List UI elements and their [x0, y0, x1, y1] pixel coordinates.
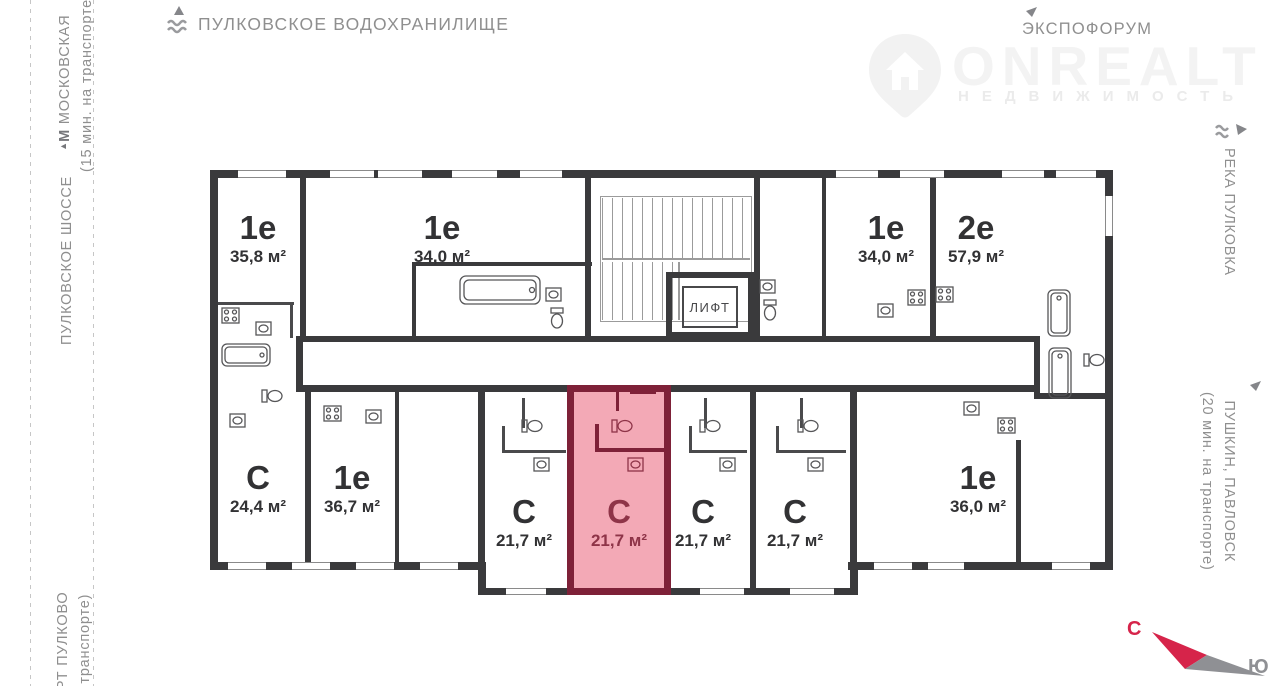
toilet-icon: [522, 420, 542, 432]
unit-s-21-7-c[interactable]: С 21,7 м²: [733, 496, 857, 551]
bathtub-icon: [460, 276, 540, 304]
stove-icon: [222, 308, 239, 323]
bathtub-icon: [222, 344, 270, 366]
sink-icon: [720, 458, 735, 471]
stove-icon: [908, 290, 925, 305]
unit-1e-35-8[interactable]: 1е 35,8 м²: [196, 212, 320, 267]
toilet-icon: [764, 300, 776, 320]
sink-icon: [760, 280, 775, 293]
sink-icon: [366, 410, 381, 423]
fixtures-layer: [0, 0, 1280, 686]
toilet-icon: [700, 420, 720, 432]
sink-icon: [256, 322, 271, 335]
sink-icon: [808, 458, 823, 471]
stove-icon: [324, 406, 341, 421]
stove-icon: [998, 418, 1015, 433]
floorplan-page: ONREALT НЕДВИЖИМОСТЬ ПУЛКОВСКОЕ ВОДОХРАН…: [0, 0, 1280, 686]
bathtub-icon: [1049, 348, 1071, 398]
unit-2e-57-9[interactable]: 2е 57,9 м²: [914, 212, 1038, 267]
toilet-icon: [612, 420, 632, 432]
sink-icon: [878, 304, 893, 317]
sink-icon: [534, 458, 549, 471]
unit-1e-34-0-left[interactable]: 1е 34,0 м²: [380, 212, 504, 267]
toilet-icon: [798, 420, 818, 432]
sink-icon: [628, 458, 643, 471]
toilet-icon: [1084, 354, 1104, 366]
unit-1e-36-0[interactable]: 1е 36,0 м²: [916, 462, 1040, 517]
sink-icon: [546, 288, 561, 301]
sink-icon: [964, 402, 979, 415]
bathtub-icon: [1048, 290, 1070, 336]
stove-icon: [936, 287, 953, 302]
toilet-icon: [262, 390, 282, 402]
toilet-icon: [551, 308, 563, 328]
unit-1e-36-7[interactable]: 1е 36,7 м²: [290, 462, 414, 517]
sink-icon: [230, 414, 245, 427]
